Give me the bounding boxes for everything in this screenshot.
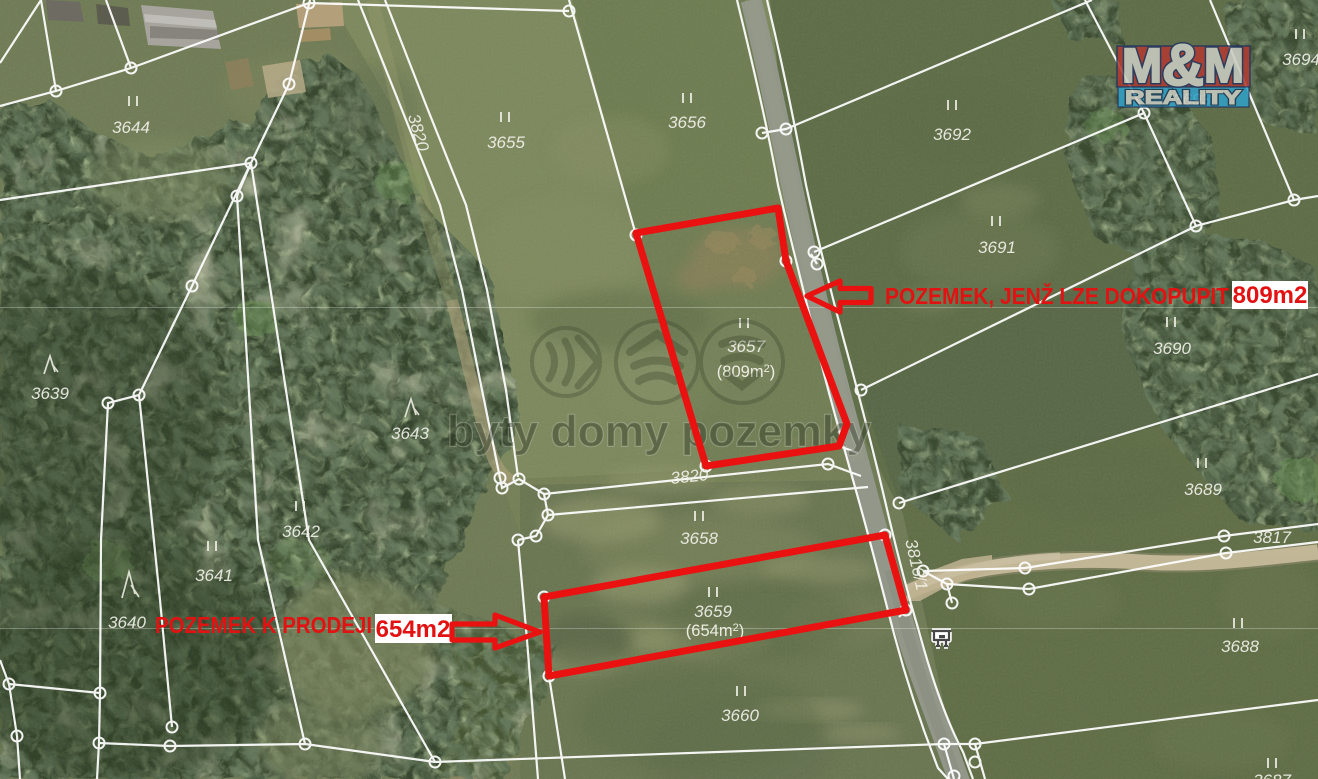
svg-text:3660: 3660: [721, 706, 759, 725]
svg-text:3692: 3692: [933, 125, 971, 144]
svg-text:3659: 3659: [694, 602, 732, 621]
svg-text:3690: 3690: [1153, 339, 1191, 358]
svg-text:3656: 3656: [668, 113, 706, 132]
svg-text:3655: 3655: [487, 133, 525, 152]
svg-text:3641: 3641: [195, 566, 233, 585]
svg-text:654m2: 654m2: [376, 616, 451, 643]
svg-text:3640: 3640: [108, 613, 146, 632]
svg-text:3644: 3644: [112, 118, 150, 137]
svg-text:3658: 3658: [680, 529, 718, 548]
svg-text:3643: 3643: [391, 424, 429, 443]
svg-text:3639: 3639: [31, 384, 69, 403]
svg-text:POZEMEK K PRODEJI: POZEMEK K PRODEJI: [155, 612, 372, 638]
svg-text:POZEMEK, JENŽ LZE DOKOPUPIT: POZEMEK, JENŽ LZE DOKOPUPIT: [885, 282, 1230, 309]
svg-text:3689: 3689: [1184, 480, 1222, 499]
svg-text:3687: 3687: [1253, 771, 1291, 779]
svg-text:3691: 3691: [978, 238, 1016, 257]
svg-text:809m2: 809m2: [1233, 282, 1308, 309]
svg-text:3642: 3642: [282, 522, 320, 541]
svg-text:3688: 3688: [1221, 637, 1259, 656]
svg-text:REALITY: REALITY: [1125, 88, 1241, 109]
svg-text:3817: 3817: [1253, 528, 1291, 547]
svg-text:3694: 3694: [1282, 50, 1318, 69]
